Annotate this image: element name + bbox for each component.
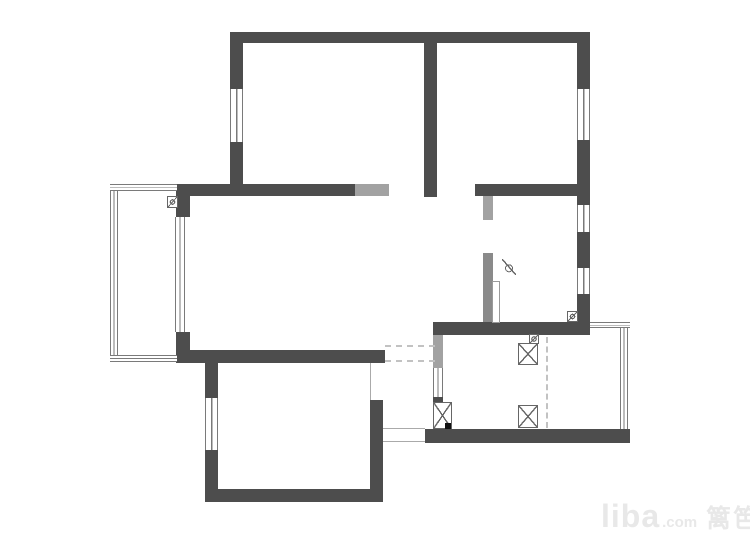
corner-dot (445, 423, 451, 429)
balcony-rail-left (110, 184, 118, 362)
balcony-rail-top (110, 184, 177, 191)
bedroom4-window (577, 89, 590, 140)
kitchen-window-left (433, 368, 443, 397)
watermark: liba.com篱笆网 (601, 499, 750, 535)
living-wall-top-left (176, 184, 355, 196)
passage-line-top (383, 428, 425, 429)
kitchen-rail-top-right (590, 322, 630, 328)
kitchen-window-right (620, 327, 628, 429)
living-wall-top-new-segment (355, 184, 389, 196)
watermark-site-name: 篱笆网 (706, 499, 750, 535)
bedroom3-door-leaf (492, 281, 500, 323)
kitchen-wall-bottom (425, 429, 630, 443)
kitchen-wall-left-new-segment (433, 335, 443, 368)
doorway-edge-line (370, 363, 371, 400)
bedroom3-window-lower (577, 268, 590, 294)
bedroom-divider-wall (424, 43, 437, 197)
gas-valve-icon (529, 334, 539, 344)
bedroom2-wall-bottom (205, 489, 383, 502)
bedroom2-wall-left-upper (205, 362, 218, 398)
bedroom1-wall-left-lower (230, 142, 243, 184)
exterior-wall-right-1 (577, 43, 590, 89)
opening-dash-lower (385, 360, 435, 362)
bedroom3-window-upper (577, 205, 590, 232)
exterior-wall-top (230, 32, 590, 43)
bedroom1-window (230, 89, 243, 142)
kitchen-wall-top (433, 322, 590, 335)
bedroom2-window (205, 398, 218, 450)
appliance-x-box-bottom (518, 405, 538, 428)
living-wall-top-right (475, 184, 590, 196)
passage-line-bottom (383, 441, 425, 442)
bedroom3-partition-upper (483, 196, 493, 220)
bedroom1-wall-left-upper (230, 43, 243, 89)
living-balcony-window (175, 217, 185, 332)
diameter-mark-icon (502, 259, 516, 275)
meter-icon (567, 311, 578, 322)
balcony-pier-top (176, 196, 190, 217)
watermark-domain-suffix: .com (662, 514, 697, 531)
kitchen-dash-divider (546, 337, 548, 428)
appliance-x-box-top (518, 343, 538, 365)
floor-plan-canvas: liba.com篱笆网 (0, 0, 750, 541)
balcony-rail-bottom (110, 355, 177, 362)
exterior-wall-right-3 (577, 232, 590, 268)
bedroom2-wall-right (370, 400, 383, 502)
watermark-brand-logo: liba (601, 500, 660, 532)
opening-dash-upper (385, 345, 435, 347)
balcony-drain-icon (167, 196, 178, 208)
